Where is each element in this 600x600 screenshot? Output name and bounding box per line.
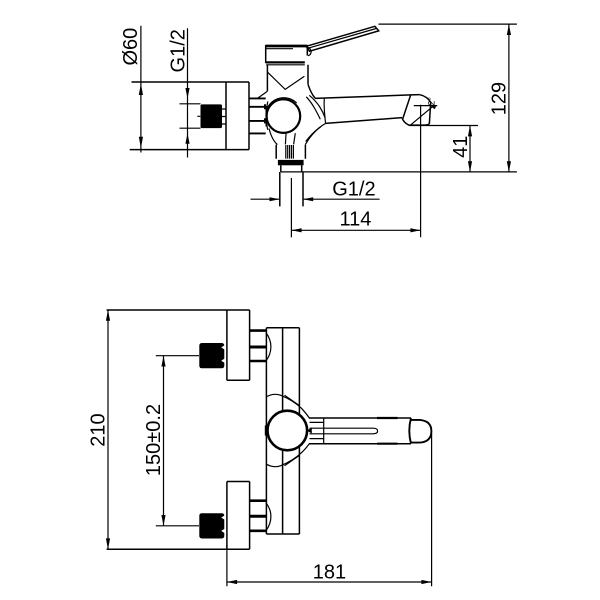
svg-text:114: 114 (340, 209, 372, 231)
svg-text:41: 41 (450, 136, 472, 158)
svg-text:150±0.2: 150±0.2 (143, 404, 165, 476)
svg-text:G1/2: G1/2 (168, 29, 190, 72)
svg-text:2°: 2° (427, 97, 437, 106)
svg-text:181: 181 (313, 562, 346, 584)
svg-text:129: 129 (489, 82, 511, 115)
svg-text:210: 210 (88, 413, 110, 446)
svg-text:Ø60: Ø60 (120, 28, 142, 66)
svg-text:G1/2: G1/2 (332, 178, 375, 200)
